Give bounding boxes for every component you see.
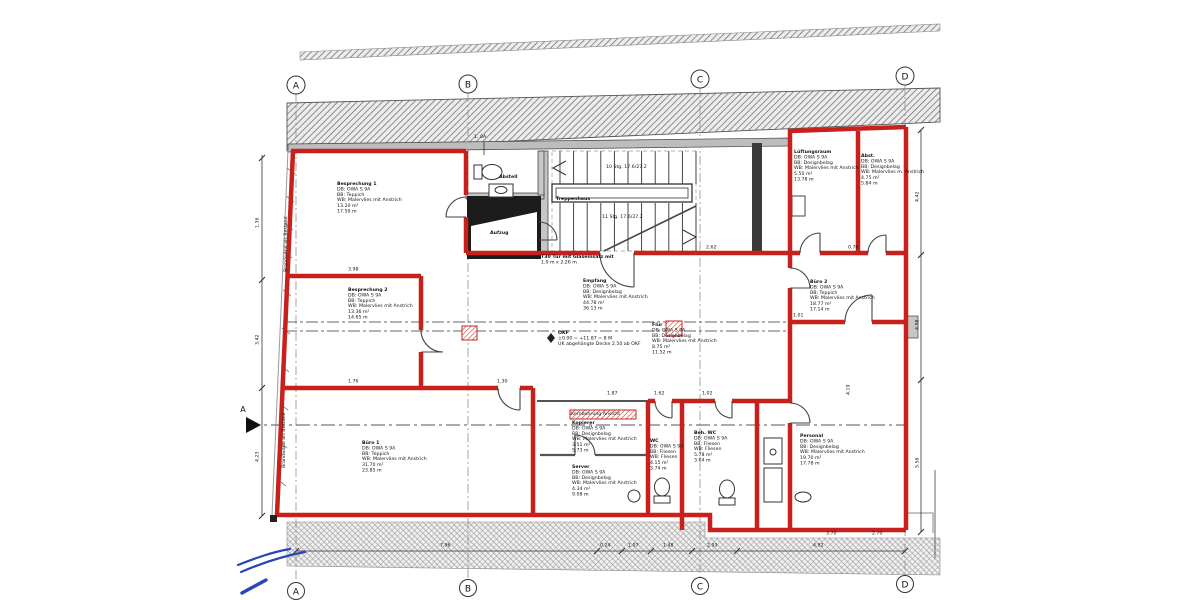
dim-inner-2: 1.76 [348,379,358,385]
dim-inner-4: 0.76 [848,245,858,251]
level-line: UK abgehängte Decke 2.50 ab OKF [558,341,641,347]
dim-inner-5: 1.01 [793,313,803,319]
section-arrow-icon [246,417,261,433]
party-wall-note-upper: Brandwand als Bestand [283,216,289,272]
stair-flight-lower [560,203,696,251]
dim-bottom-2: 0.24 [600,543,610,549]
core-drill-note: Kernbohrung Ansicht [571,411,620,417]
stairs-up-note: 10 Stg. 17.6/27.2 [606,164,647,170]
corner-block [270,515,277,522]
room-perimeter: 5.84 m [861,181,924,187]
room-label-empfang: Empfang DB: OWA S 9A BB: Designbelag WB:… [583,278,648,311]
dim-inner-3: 2.62 [706,245,716,251]
room-label-server: Server DB: OWA S 9A BB: Designbelag WB: … [572,464,637,497]
door-wc [655,401,672,418]
grid-label-d-top: D [902,73,909,83]
toilet-tank-abstell [474,165,482,179]
door-flur-buero2 [790,268,810,288]
markers: A [240,333,555,433]
dim-inner-6: 1.87 [607,391,617,397]
floorplan-canvas: A B C D A B C D [0,0,1200,600]
room-perimeter: 3.74 m [650,466,683,472]
door-lueftungsraum [800,233,820,253]
level-marker-icon [547,333,555,343]
grid-label-d-bottom: D [902,581,909,591]
room-label-treppenhaus: Treppenhaus [556,196,590,202]
party-wall-note-lower: Brandwand als Bestand [281,412,287,468]
door-personal [790,403,810,423]
dim-right-2: 4.58 [915,320,921,330]
door-note-line: 1.0 m x 2.26 m [541,260,614,266]
toilet-tank-behwc [719,498,735,505]
door-besprechung1 [446,197,466,217]
room-label-wc: WC DB: OWA S 9A BB: Fliesen WB: Fliesen … [650,438,683,471]
outside-step [906,513,933,533]
room-perimeter: 23.85 m [362,468,427,474]
wall-topright-block [790,127,906,253]
dim-inner-8: 1.02 [702,391,712,397]
grid-label-a-bottom: A [293,588,300,598]
top-thin-hatch-band [300,24,940,60]
door-besprechung2 [421,330,443,352]
grid-label-c-bottom: C [697,583,703,593]
dim-left-2: 3.42 [255,335,261,345]
dim-inner-10: 3.70 [826,531,836,537]
toilet-icon [655,478,670,496]
grid-label-b-top: B [465,81,471,91]
wc-block-right-wall [538,151,544,195]
door-buero1 [498,388,520,410]
wall-niche [792,196,805,216]
room-perimeter: 13.78 m [794,177,859,183]
dim-left-1: 1.36 [255,218,261,228]
door-abst [868,235,886,253]
room-perimeter: 17.78 m [800,461,865,467]
room-label-kopierer: Kopierer DB: OWA S 9A BB: Designbelag WB… [572,420,637,453]
dim-bottom-6: 4.92 [813,543,823,549]
room-label-abst: Abst. DB: OWA S 9A BB: Designbelag WB: M… [861,153,924,186]
room-perimeter: 17.14 m [810,307,875,313]
stair-right-wall [752,143,762,253]
label-line: DB: OWA S 9A [694,436,727,442]
room-perimeter: 3.64 m [694,458,727,464]
toilet-tank-wc [654,496,670,503]
stair-arrow-up-icon [553,161,566,175]
dim-right-1: 4.42 [915,192,921,202]
dim-inner-1: 3.98 [348,267,358,273]
dim-inner-9: 2.70 [872,531,882,537]
label-line: DB: OWA S 9A [650,444,683,450]
door-note: T30 Tür mit Glaseinsatz mit 1.0 m x 2.26… [541,254,614,265]
dim-bottom-3: 1.07 [628,543,638,549]
toilet-icon [720,480,735,498]
dim-right-3: 5.56 [915,458,921,468]
sink-basin-icon [495,187,507,194]
column-hatch-1 [462,326,477,340]
room-label-buero-2: Büro 2 DB: OWA S 9A BB: Teppich WB: Male… [810,279,875,312]
dim-left-3: 4.23 [255,452,261,462]
dim-inner-11: 1.30 [497,379,507,385]
elevator-shaft [469,198,539,257]
room-label-abstell: Abstell [499,174,517,180]
grid-label-c-top: C [697,76,703,86]
grid-label-b-bottom: B [465,585,471,595]
room-perimeter: 17.59 m [337,209,402,215]
room-label-flur: Flur DB: OWA S 9A BB: Designbelag WB: Ma… [652,322,717,355]
wall-type-label: 1. 0A [474,134,486,140]
room-label-besprechung-1: Besprechung 1 DB: OWA S 9A BB: Teppich W… [337,181,402,214]
room-label-buero-1: Büro 1 DB: OWA S 9A BB: Teppich WB: Male… [362,440,427,473]
dim-inner-7: 1.62 [654,391,664,397]
door-beh-wc [715,401,732,418]
room-perimeter: 36.13 m [583,306,648,312]
pen-stroke-3 [242,580,266,593]
room-label-personal: Personal DB: OWA S 9A BB: Designbelag WB… [800,433,865,466]
level-note: OKF ±0.00 = +11.87 = 8 M UK abgehängte D… [558,330,641,347]
stair-arrow-down-icon [683,230,696,244]
washbasin-icon [795,492,811,502]
dim-bottom-1: 7.96 [440,543,450,549]
dim-inner-12: 4.19 [846,385,852,395]
shaft-appliance-2 [764,468,782,502]
room-perimeter: 11.52 m [652,350,717,356]
room-label-beh-wc: Beh. WC DB: OWA S 9A BB: Fliesen WB: Fli… [694,430,727,463]
section-marker-label: A [240,405,246,414]
shaft-valve-icon [770,449,776,455]
room-perimeter: 9.08 m [572,492,637,498]
room-perimeter: 14.65 m [348,315,413,321]
room-label-aufzug: Aufzug [490,230,508,236]
dim-bottom-5: 2.93 [707,543,717,549]
dim-bottom-4: 1.48 [663,543,673,549]
grid-label-a-top: A [293,82,300,92]
stairs-down-note: 11 Stg. 17.6/27.2 [602,214,643,220]
room-label-besprechung-2: Besprechung 2 DB: OWA S 9A BB: Teppich W… [348,287,413,320]
room-label-lueftungsraum: Lüftungsraum DB: OWA S 9A BB: Designbela… [794,149,859,182]
room-perimeter: 5.73 m [572,448,637,454]
